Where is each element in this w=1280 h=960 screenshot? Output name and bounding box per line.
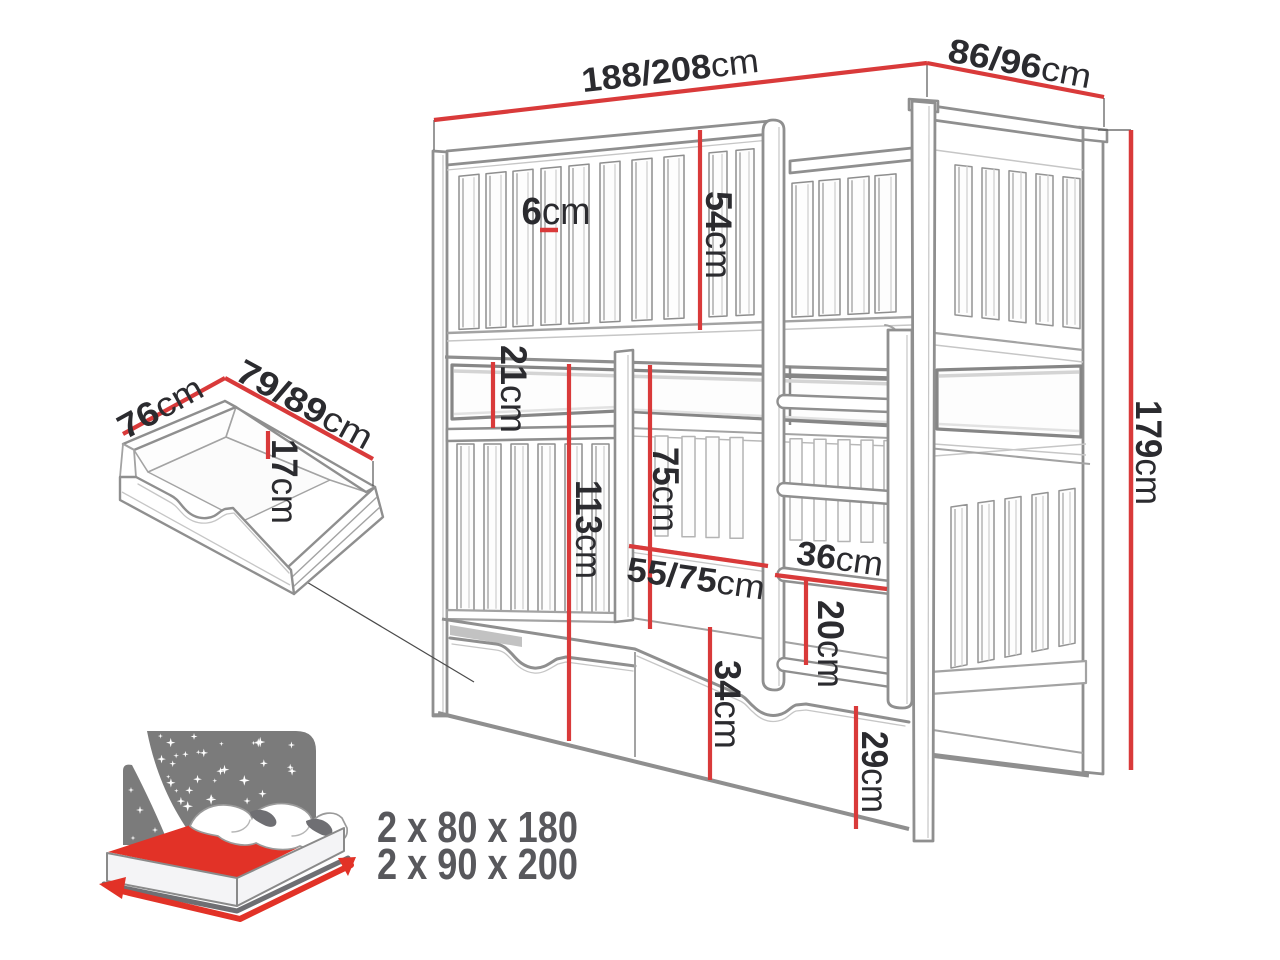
svg-text:113cm: 113cm [568,480,609,579]
svg-text:34cm: 34cm [707,660,748,749]
svg-text:29cm: 29cm [854,731,895,813]
svg-text:6cm: 6cm [522,191,591,233]
svg-text:2 x 90 x 200: 2 x 90 x 200 [377,840,578,889]
svg-text:21cm: 21cm [493,345,534,433]
svg-text:54cm: 54cm [698,191,739,279]
svg-text:17cm: 17cm [264,439,305,524]
svg-text:75cm: 75cm [645,447,686,532]
svg-text:20cm: 20cm [810,600,851,688]
svg-text:179cm: 179cm [1128,400,1169,505]
